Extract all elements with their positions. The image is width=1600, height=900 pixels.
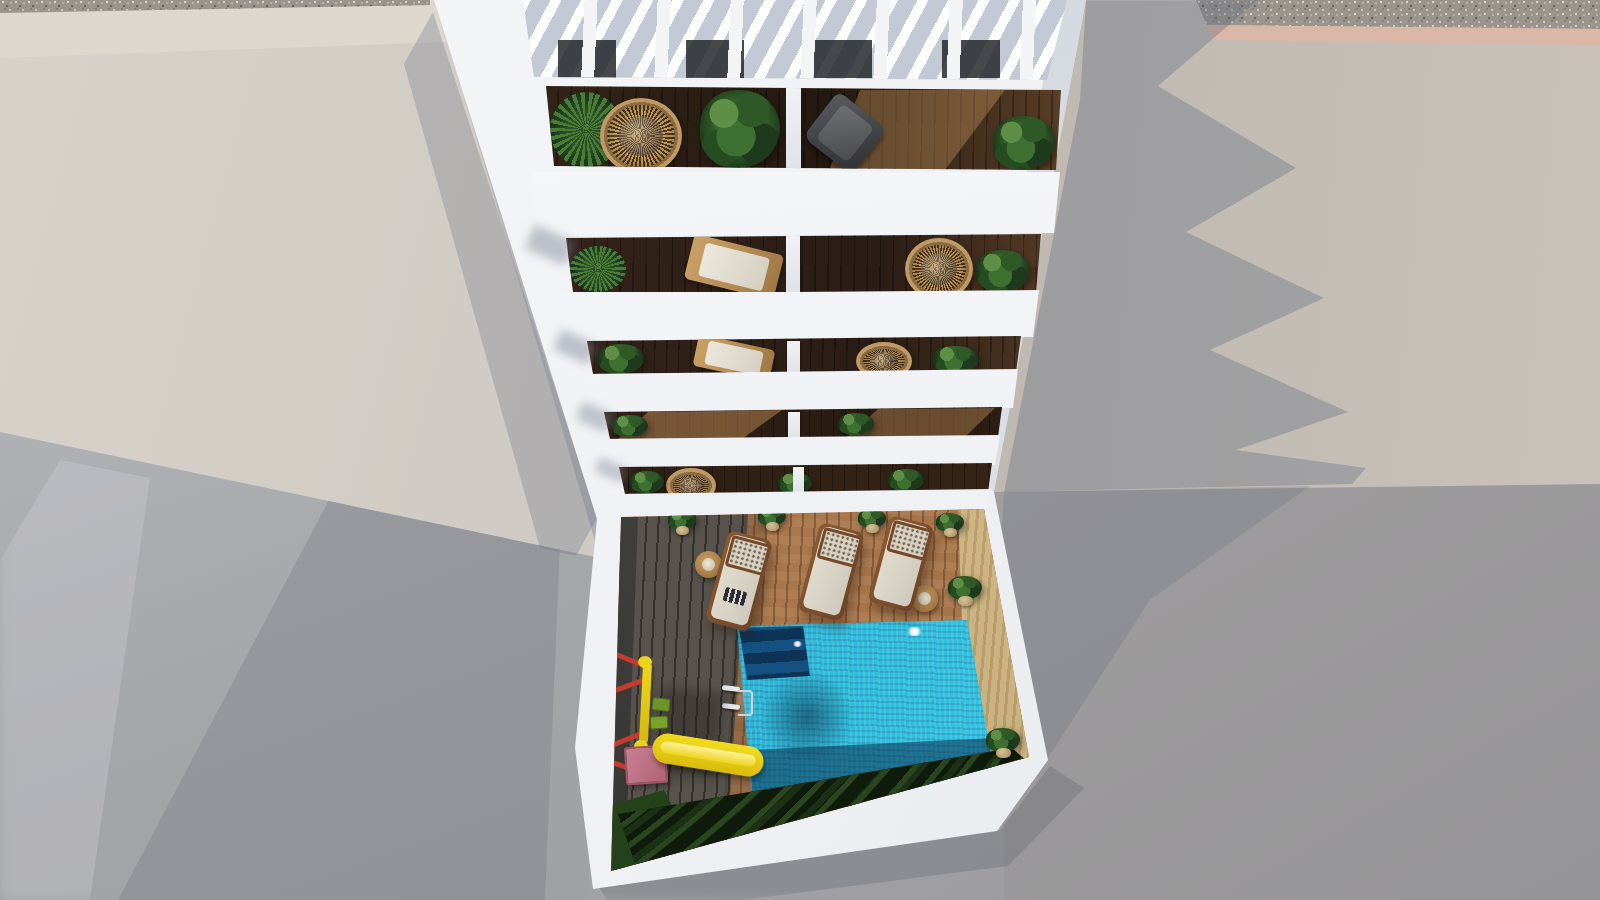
balcony-leafy-plant — [933, 346, 979, 373]
plant-pot — [958, 596, 973, 606]
balcony-leafy-plant — [630, 471, 664, 493]
balcony-leafy-plant — [888, 469, 924, 491]
swing-seat — [651, 697, 670, 712]
balcony-divider — [786, 236, 800, 292]
plant-pot — [944, 528, 957, 537]
balcony-divider — [787, 341, 800, 374]
pool-ladder-steps — [738, 690, 753, 716]
balcony-leafy-plant — [598, 344, 644, 374]
plant-pot — [766, 522, 779, 531]
balcony-leafy-plant — [976, 250, 1030, 292]
aerial-render-scene: Aerial top-down 3D architectural render … — [0, 0, 1600, 900]
swing-beam-cap — [638, 656, 652, 668]
balcony-palm-plant — [570, 246, 626, 292]
balcony-leafy-plant — [993, 116, 1055, 170]
balcony-divider — [786, 88, 801, 170]
pool-sparkle — [792, 641, 803, 647]
wooden-lounger — [684, 234, 784, 301]
swing-seat — [650, 715, 669, 729]
papasan-chair — [600, 98, 682, 174]
plant-pot — [996, 748, 1011, 758]
pool-sparkle — [906, 627, 923, 636]
balcony-divider — [793, 467, 804, 494]
plant-pot — [866, 524, 879, 533]
balcony-divider — [788, 412, 800, 439]
plant-pot — [676, 526, 689, 535]
balcony-leafy-plant — [700, 90, 780, 168]
